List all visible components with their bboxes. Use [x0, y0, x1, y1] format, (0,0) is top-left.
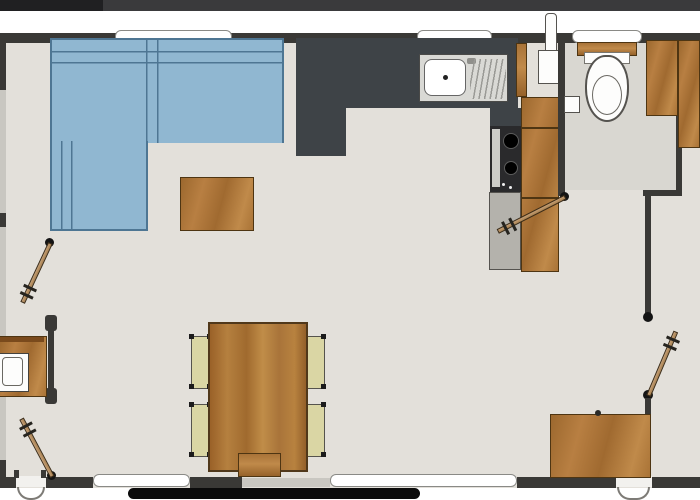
- bedroom-wall-upper: [645, 196, 651, 314]
- kitchen-counter-return: [296, 108, 346, 156]
- hob-panel: [492, 129, 500, 187]
- door-post: [643, 312, 653, 322]
- vanity-basin: [0, 353, 29, 392]
- water-heater: [538, 50, 560, 84]
- dining-chair: [305, 336, 325, 389]
- dresser-knob: [595, 410, 601, 416]
- left-wall-window: [0, 90, 6, 213]
- bathroom-cabinet: [646, 40, 678, 116]
- dresser: [550, 414, 651, 478]
- corner-sofa: [50, 38, 284, 143]
- vanity-basin-inner: [2, 357, 23, 386]
- hob: [490, 126, 521, 192]
- bedroom-wardrobe: [678, 40, 700, 148]
- door-post: [14, 470, 19, 478]
- dining-table: [208, 322, 308, 472]
- floor-plan-canvas: [0, 0, 700, 500]
- water-heater-vent: [545, 13, 557, 51]
- entry-swing-arc: [17, 487, 45, 500]
- bench: [238, 453, 281, 477]
- dining-chair: [305, 404, 325, 457]
- left-wall: [0, 33, 6, 90]
- toilet-bowl-inner: [592, 75, 622, 115]
- coffee-table: [180, 177, 254, 231]
- bottom-wall: [190, 477, 242, 488]
- corner-sofa-chaise: [50, 141, 148, 231]
- bottom-wall-sill: [242, 478, 330, 487]
- entry-swing-arc: [617, 487, 650, 500]
- header-bar-dark-segment: [0, 0, 103, 11]
- window-bottom-wide: [330, 474, 517, 487]
- sink-drain-dot: [443, 75, 448, 80]
- left-wall: [0, 213, 6, 227]
- sink-drainboard: [470, 59, 506, 99]
- bottom-wall: [517, 477, 616, 488]
- bottom-wall: [0, 477, 16, 488]
- hob-burner: [503, 133, 519, 149]
- bottom-black-bar: [128, 488, 420, 499]
- counter-edge-strip: [516, 43, 527, 97]
- tall-cabinet: [521, 97, 559, 272]
- vanity-top-band: [0, 337, 44, 342]
- paper-holder: [564, 96, 580, 113]
- partition-cap: [45, 315, 57, 331]
- hob-burner: [504, 161, 518, 175]
- window-bottom-left: [93, 474, 190, 487]
- hob-knob: [502, 183, 505, 186]
- hob-knob: [509, 186, 512, 189]
- header-bar: [0, 0, 700, 11]
- bathroom-left-wall: [558, 38, 565, 196]
- vanity-unit: [0, 336, 47, 397]
- bottom-wall: [652, 477, 700, 488]
- kitchen-sink: [419, 54, 508, 102]
